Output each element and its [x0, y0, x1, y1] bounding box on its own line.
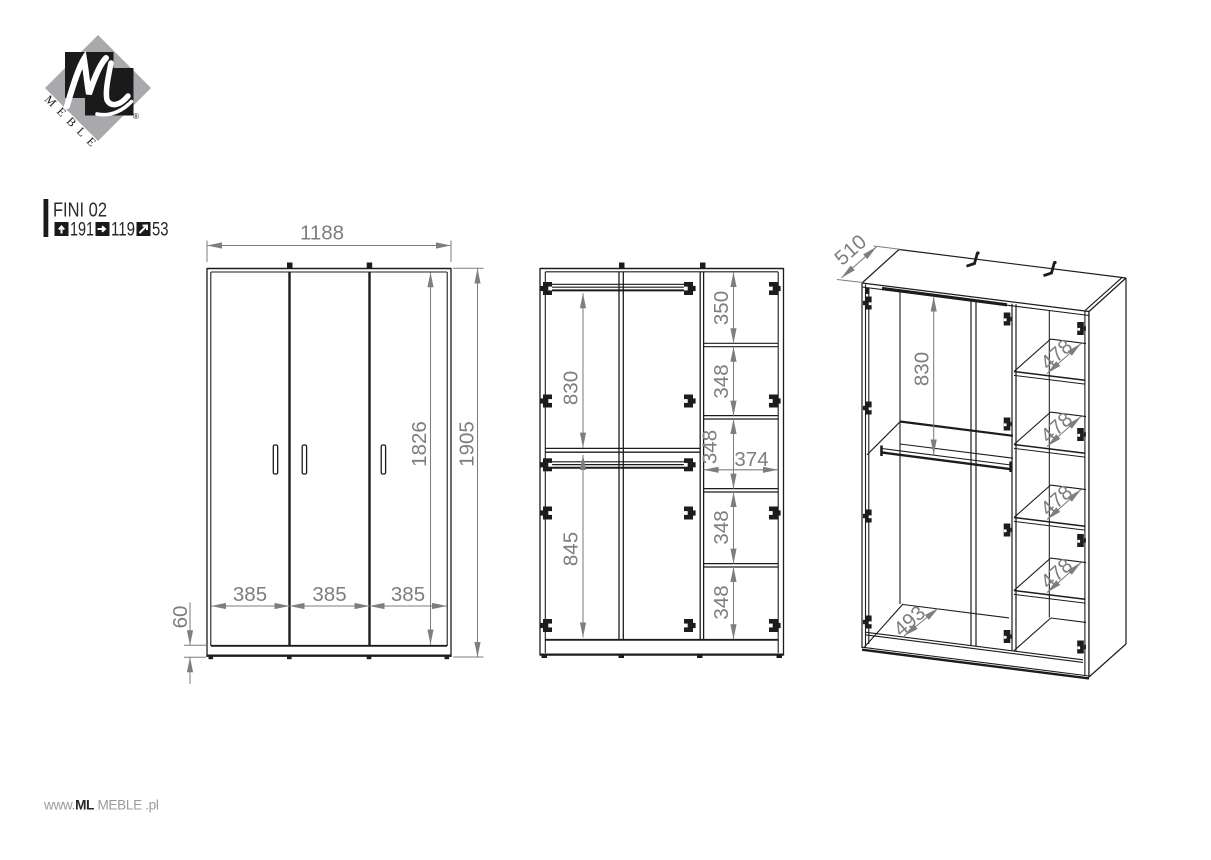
svg-text:350: 350	[710, 291, 733, 325]
svg-text:191: 191	[70, 219, 94, 241]
svg-text:374: 374	[734, 448, 768, 471]
svg-text:830: 830	[911, 352, 934, 386]
svg-text:53: 53	[152, 219, 169, 241]
svg-text:119: 119	[111, 219, 135, 241]
svg-text:®: ®	[133, 112, 139, 121]
svg-text:830: 830	[560, 371, 583, 405]
svg-text:348: 348	[710, 510, 733, 544]
svg-text:348: 348	[699, 430, 722, 464]
svg-text:385: 385	[312, 583, 346, 606]
svg-text:385: 385	[233, 583, 267, 606]
svg-text:60: 60	[169, 606, 192, 629]
svg-text:1826: 1826	[408, 421, 431, 467]
svg-text:1905: 1905	[456, 421, 479, 467]
svg-text:845: 845	[560, 532, 583, 566]
svg-text:385: 385	[391, 583, 425, 606]
svg-text:www.ML MEBLE .pl: www.ML MEBLE .pl	[43, 798, 159, 813]
svg-text:348: 348	[710, 585, 733, 619]
svg-text:348: 348	[710, 364, 733, 398]
svg-text:1188: 1188	[300, 222, 344, 245]
